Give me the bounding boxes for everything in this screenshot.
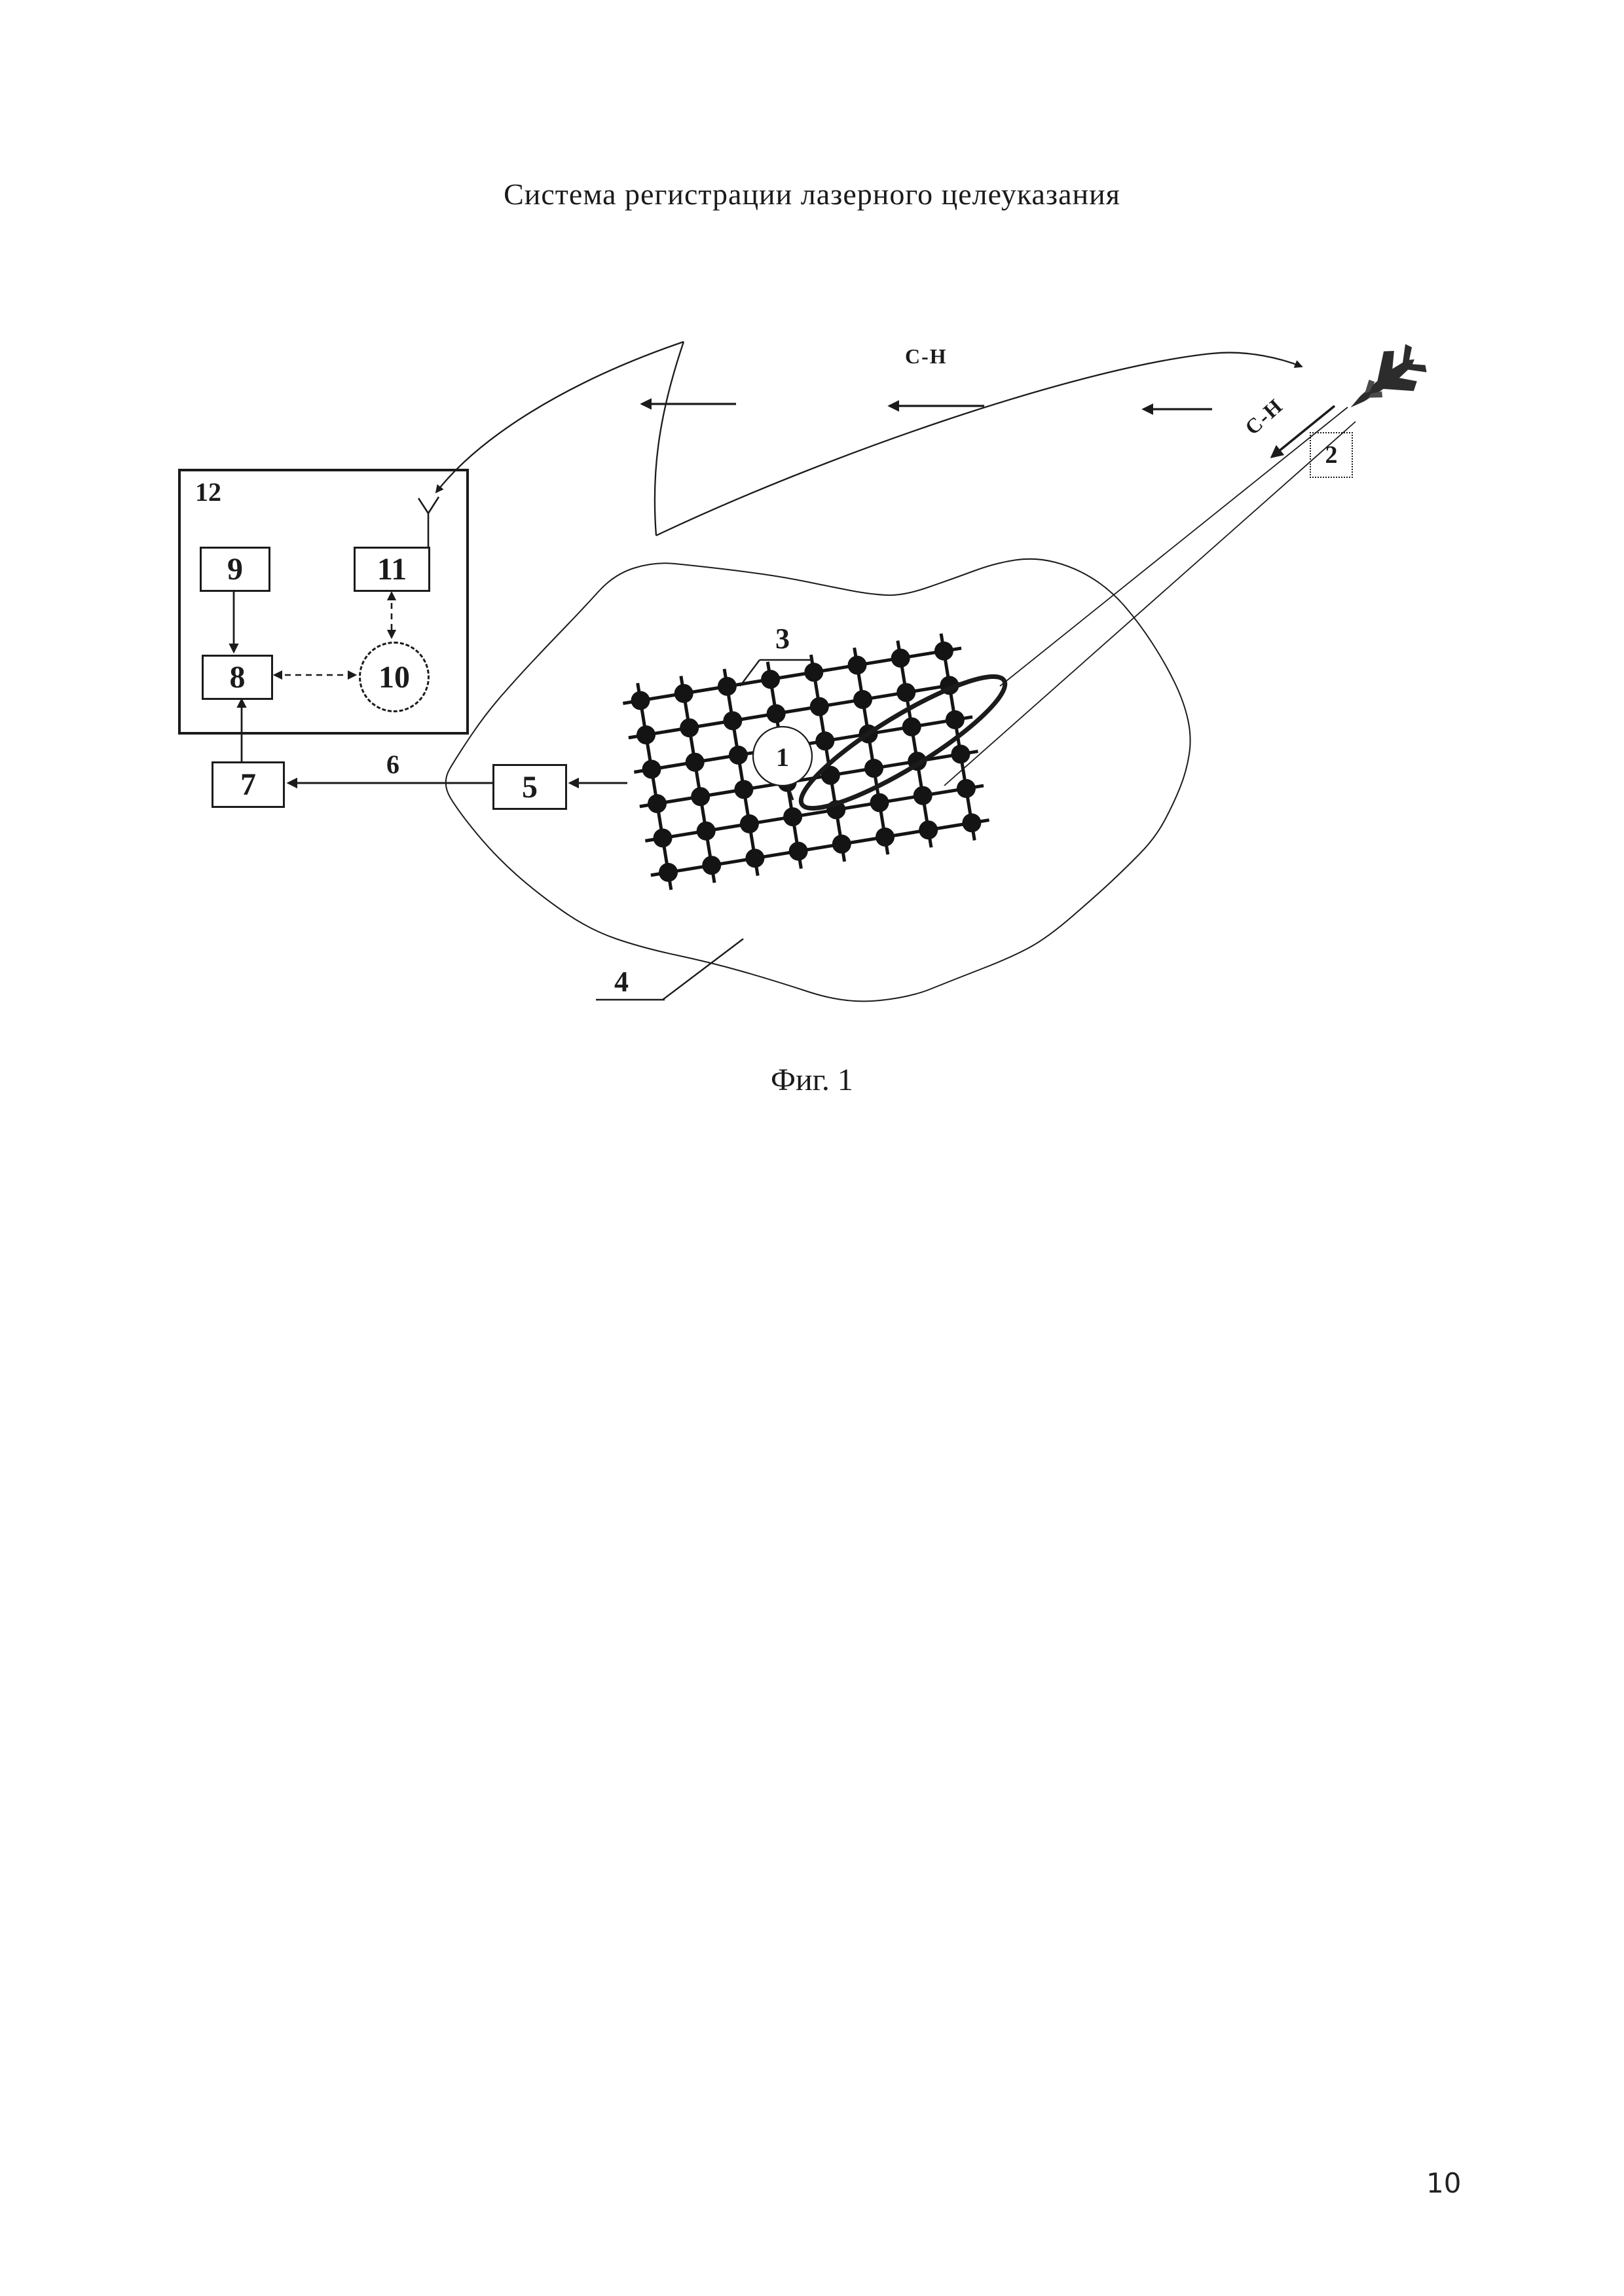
sensor-dot bbox=[919, 820, 938, 839]
block-10: 10 bbox=[359, 642, 430, 712]
laser-beam-1 bbox=[1000, 407, 1348, 686]
sensor-dot bbox=[723, 711, 742, 730]
sensor-dot bbox=[848, 656, 867, 675]
label-cloud-zone: 4 bbox=[614, 965, 629, 998]
flight-path-out bbox=[436, 342, 684, 492]
sensor-dot bbox=[876, 828, 895, 847]
sensor-dot bbox=[783, 807, 802, 826]
block-10-label: 10 bbox=[378, 659, 410, 695]
sensor-dot bbox=[697, 822, 716, 841]
sensor-dot bbox=[891, 649, 910, 668]
figure-caption: Фиг. 1 bbox=[0, 1062, 1624, 1098]
sensor-dot bbox=[810, 697, 829, 716]
sensor-dot bbox=[853, 690, 872, 709]
sensor-dot bbox=[902, 718, 921, 737]
block-9: 9 bbox=[200, 547, 270, 592]
target-circle-label: 1 bbox=[776, 742, 789, 772]
grid-line bbox=[681, 676, 714, 883]
sensor-dot bbox=[951, 744, 970, 763]
grid-line bbox=[638, 683, 671, 890]
sensor-dot bbox=[767, 704, 786, 723]
block-2: 2 bbox=[1310, 432, 1353, 478]
block-9-label: 9 bbox=[227, 551, 243, 587]
sensor-dot bbox=[674, 684, 693, 703]
sensor-dot bbox=[642, 760, 661, 779]
grid-line bbox=[898, 641, 931, 848]
label-link-6: 6 bbox=[386, 749, 399, 780]
sensor-dot bbox=[734, 780, 753, 799]
sensor-dot bbox=[691, 787, 710, 806]
laser-beam-2 bbox=[944, 422, 1356, 786]
sensor-dot bbox=[864, 759, 883, 778]
block-7-label: 7 bbox=[240, 767, 256, 803]
sensor-dot bbox=[913, 786, 932, 805]
sensor-dot bbox=[957, 779, 976, 798]
sensor-dot bbox=[761, 670, 780, 689]
block-8: 8 bbox=[202, 655, 273, 700]
sensor-dot bbox=[946, 710, 965, 729]
sensor-dot bbox=[745, 848, 764, 867]
sensor-dot bbox=[680, 718, 699, 737]
sensor-dot bbox=[686, 753, 705, 772]
block-5-label: 5 bbox=[522, 769, 538, 805]
sensor-dot bbox=[648, 794, 667, 813]
sensor-dot bbox=[896, 683, 915, 702]
block-7: 7 bbox=[212, 761, 285, 808]
sensor-dot bbox=[631, 691, 650, 710]
block-5: 5 bbox=[492, 764, 567, 810]
block-11-label: 11 bbox=[377, 551, 407, 587]
patent-figure-page: Система регистрации лазерного целеуказан… bbox=[0, 0, 1624, 2296]
aircraft-icon bbox=[1336, 337, 1434, 428]
grid-line bbox=[811, 655, 844, 862]
sensor-dot bbox=[702, 856, 721, 875]
sensor-dot bbox=[804, 663, 823, 682]
figure-drawing: 1 bbox=[0, 0, 1624, 2296]
sensor-dot bbox=[654, 829, 673, 848]
sensor-dot bbox=[637, 725, 655, 744]
sensor-dot bbox=[815, 731, 834, 750]
block-11: 11 bbox=[354, 547, 430, 592]
block-2-label: 2 bbox=[1325, 441, 1338, 469]
sensor-dot bbox=[934, 642, 953, 661]
grid-line bbox=[724, 669, 758, 876]
block-8-label: 8 bbox=[230, 659, 246, 695]
sensor-dot bbox=[740, 814, 759, 833]
sensor-dot bbox=[789, 842, 808, 861]
grid-line bbox=[855, 647, 888, 854]
sensor-dot bbox=[729, 746, 748, 765]
station-12-label: 12 bbox=[195, 477, 221, 507]
label-sensor-grid: 3 bbox=[775, 622, 790, 655]
signal-label-top: С-Н bbox=[905, 344, 948, 369]
page-number: 10 bbox=[1426, 2167, 1461, 2199]
page-title: Система регистрации лазерного целеуказан… bbox=[0, 177, 1624, 211]
sensor-dot bbox=[962, 813, 981, 832]
sensor-dot bbox=[832, 835, 851, 854]
sensor-dot bbox=[718, 677, 737, 696]
sensor-dot bbox=[659, 863, 678, 882]
flight-path-turn bbox=[655, 342, 684, 536]
flight-path-return bbox=[656, 353, 1302, 536]
sensor-dot bbox=[870, 793, 889, 812]
